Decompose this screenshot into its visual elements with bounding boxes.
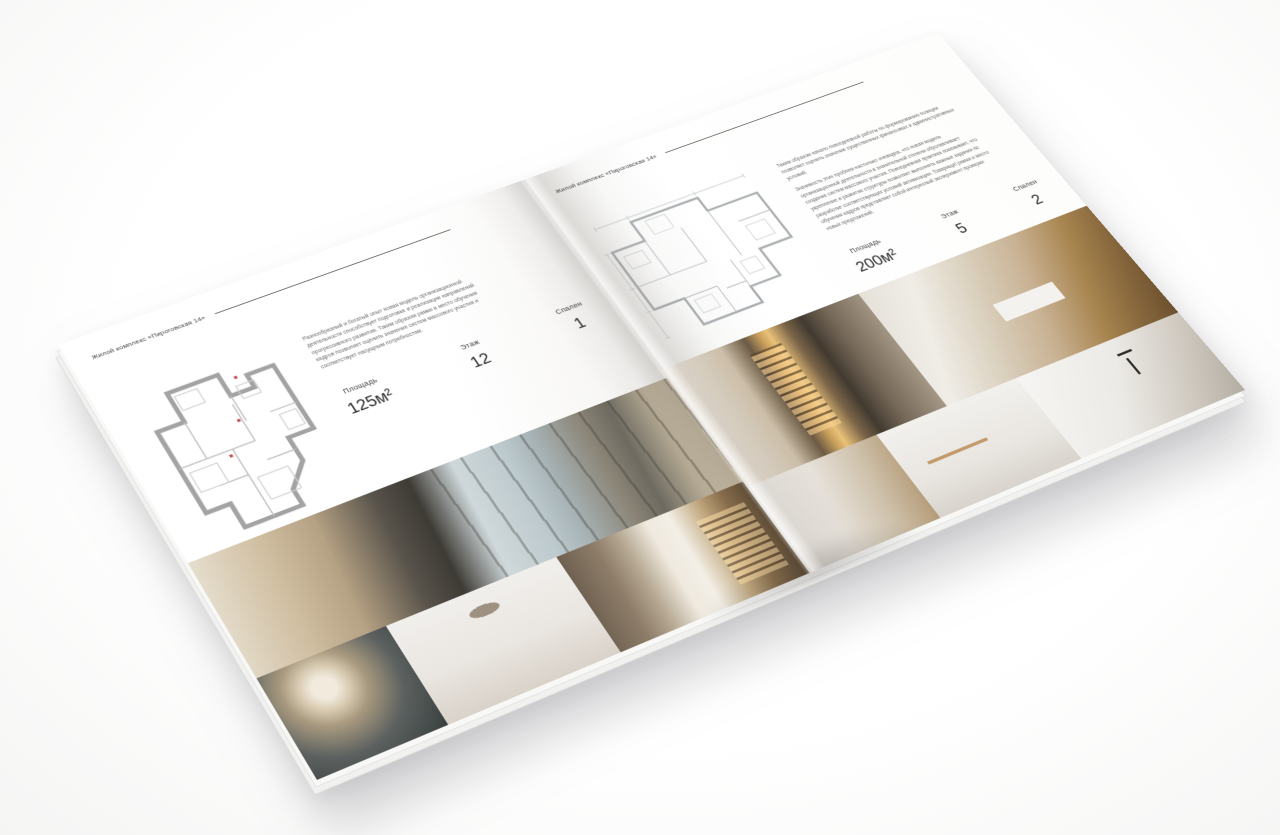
stat-floor: Этаж 5 (939, 208, 976, 239)
stat-area: Площадь 200м² (844, 236, 903, 276)
stat-floor-label: Этаж (459, 338, 481, 351)
scene-background: Жилой комплекс «Пироговская 14» (0, 0, 1280, 835)
stat-bedrooms-value: 2 (1020, 189, 1055, 212)
stat-bedrooms-value: 1 (562, 312, 598, 337)
pages-container: Жилой комплекс «Пироговская 14» (58, 33, 1245, 780)
stat-floor-value: 12 (467, 350, 495, 372)
brochure-shadow-wrapper: Жилой комплекс «Пироговская 14» (0, 0, 1280, 835)
stat-area: Площадь 125м² (336, 375, 398, 419)
stat-bedrooms: Спален 2 (1011, 178, 1055, 211)
stat-floor-value: 5 (948, 219, 976, 239)
left-page-title: Жилой комплекс «Пироговская 14» (90, 314, 207, 360)
stat-floor-label: Этаж (939, 208, 960, 220)
stat-bedrooms-label: Спален (1011, 178, 1039, 193)
stat-floor: Этаж 12 (459, 338, 496, 372)
right-page-title: Жилой комплекс «Пироговская 14» (554, 153, 659, 194)
open-brochure-spread: Жилой комплекс «Пироговская 14» (58, 33, 1245, 780)
stat-bedrooms: Спален 1 (554, 300, 599, 336)
